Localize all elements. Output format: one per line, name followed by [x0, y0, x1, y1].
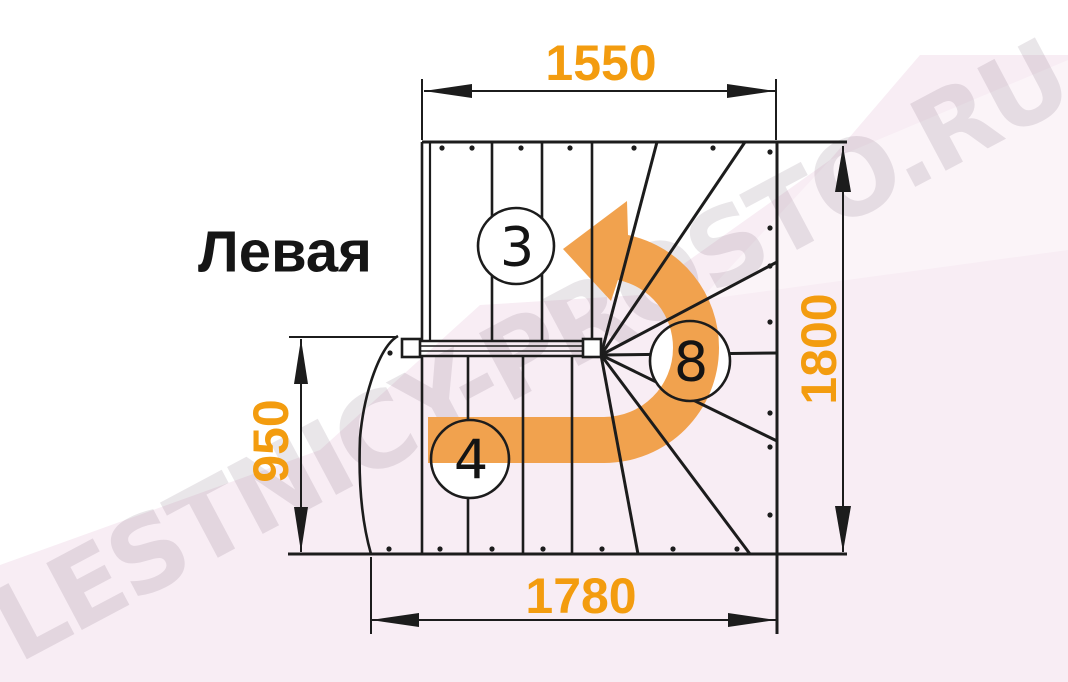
dim-value-left: 950 — [242, 399, 300, 482]
step-count-upper: 3 — [500, 216, 534, 279]
dim-arrowhead — [294, 339, 308, 384]
dim-arrowhead — [728, 613, 776, 627]
beam-post-left — [402, 339, 420, 357]
plan-title: Левая — [198, 219, 372, 286]
stair-plan-diagram: LESTNICY-PROSTO.RU — [0, 0, 1068, 682]
dim-value-right: 1800 — [790, 293, 848, 404]
dim-arrowhead — [835, 506, 851, 552]
dim-value-top: 1550 — [545, 34, 656, 92]
dim-value-bottom: 1780 — [525, 567, 636, 625]
dim-arrowhead — [424, 84, 472, 98]
curved-stringer-wall — [360, 336, 398, 554]
step-count-lower: 4 — [454, 429, 488, 492]
step-count-winder: 8 — [674, 331, 708, 394]
beam-post-right — [583, 339, 601, 357]
dim-arrowhead — [835, 146, 851, 192]
landing-beam — [402, 339, 601, 357]
dim-arrowhead — [371, 613, 419, 627]
dim-arrowhead — [727, 84, 775, 98]
dim-arrowhead — [294, 507, 308, 552]
